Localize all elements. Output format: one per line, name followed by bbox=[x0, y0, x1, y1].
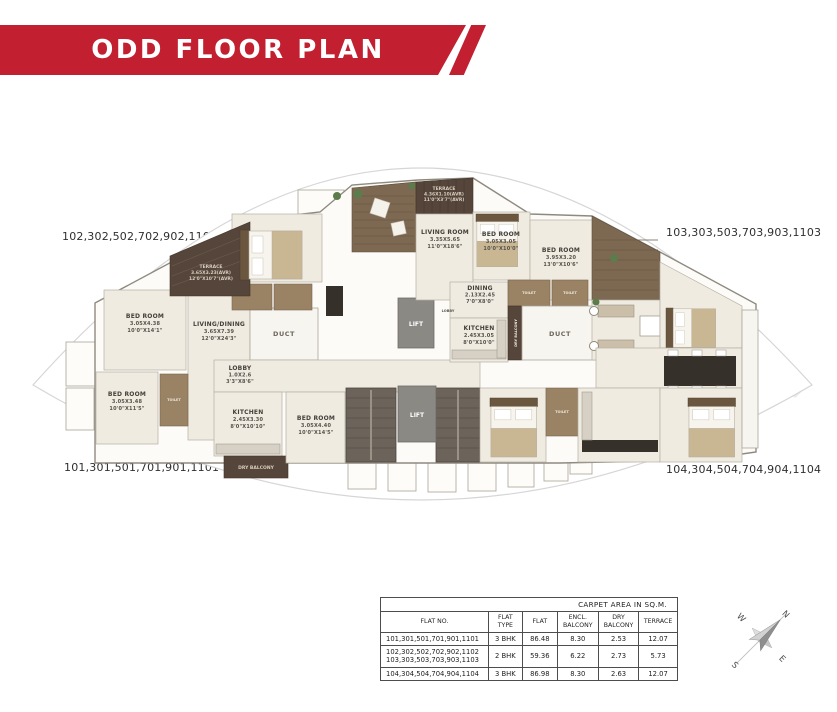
room-label-dining-103: DINING2.13X2.457'0"X8'0" bbox=[465, 285, 496, 305]
bed-104-top bbox=[666, 308, 716, 348]
cell-flat-no: 101,301,501,701,901,1101 bbox=[381, 632, 489, 645]
room-label-duct-right: DUCT bbox=[549, 330, 571, 338]
page-title: ODD FLOOR PLAN bbox=[81, 35, 385, 65]
col-dry-balcony: DRY BALCONY bbox=[598, 612, 638, 633]
table-title: CARPET AREA IN SQ.M. bbox=[381, 598, 678, 612]
room-label-bedroom-102: BED ROOM3.05X4.3810'0"X14'1" bbox=[126, 313, 164, 334]
room-label-toilet-103a: TOILET bbox=[522, 291, 536, 295]
right-edge-balcony bbox=[742, 310, 758, 448]
kitchen-104-counter-2 bbox=[582, 392, 592, 440]
cell-flat-type: 2 BHK bbox=[488, 645, 522, 667]
cell-flat: 86.48 bbox=[522, 632, 557, 645]
table-header-row: FLAT NO. FLAT TYPE FLAT ENCL. BALCONY DR… bbox=[381, 612, 678, 633]
flat-no-line-2: 103,303,503,703,903,1103 bbox=[386, 656, 485, 664]
cell-flat-type: 3 BHK bbox=[488, 667, 522, 680]
table-row-101: 101,301,501,701,901,1101 3 BHK 86.48 8.3… bbox=[381, 632, 678, 645]
odd-floor-plan-page: ODD FLOOR PLAN 102,302,502,702,902,1102 … bbox=[0, 0, 837, 712]
compass-s: S bbox=[729, 660, 740, 671]
cell-terrace: 12.07 bbox=[639, 632, 678, 645]
col-flat-no: FLAT NO. bbox=[381, 612, 489, 633]
flat-no-line-1: 102,302,502,702,902,1102 bbox=[386, 648, 485, 656]
compass-e: E bbox=[776, 654, 787, 665]
bed-104-br bbox=[688, 398, 736, 457]
cell-flat-type: 3 BHK bbox=[488, 632, 522, 645]
room-label-bedroom-103b: BED ROOM3.95X3.2013'0"X10'6" bbox=[542, 247, 580, 268]
cell-flat: 86.98 bbox=[522, 667, 557, 680]
cell-terrace: 12.07 bbox=[639, 667, 678, 680]
room-label-dry-balcony-101: DRY BALCONY bbox=[238, 465, 274, 471]
room-label-lift-upper: LIFT bbox=[409, 321, 424, 328]
sofa-104-a bbox=[598, 305, 634, 317]
cell-dry: 2.73 bbox=[598, 645, 638, 667]
title-banner: ODD FLOOR PLAN bbox=[0, 25, 466, 75]
bed-104-bl bbox=[490, 398, 538, 457]
col-flat: FLAT bbox=[522, 612, 557, 633]
room-label-kitchen-101: KITCHEN2.45X3.308'0"X10'10" bbox=[230, 409, 265, 430]
table-row-104: 104,304,504,704,904,1104 3 BHK 86.98 8.3… bbox=[381, 667, 678, 680]
room-label-duct-left: DUCT bbox=[273, 330, 295, 338]
compass-w: W bbox=[734, 612, 747, 625]
dinette-102-table bbox=[326, 286, 343, 316]
floor-plan-canvas: TERRACE3.65X3.23(AVR)12'0"X10'7"(AVR) BE… bbox=[0, 155, 837, 515]
cell-dry: 2.53 bbox=[598, 632, 638, 645]
table-row-102-103: 102,302,502,702,902,1102 103,303,503,703… bbox=[381, 645, 678, 667]
room-label-toilet-103b: TOILET bbox=[563, 291, 577, 295]
bed-102 bbox=[240, 230, 302, 280]
cell-flat: 59.36 bbox=[522, 645, 557, 667]
cell-flat-no: 102,302,502,702,902,1102 103,303,503,703… bbox=[381, 645, 489, 667]
col-terrace: TERRACE bbox=[639, 612, 678, 633]
room-label-kitchen-103: KITCHEN2.45X3.058'0"X10'0" bbox=[463, 325, 495, 346]
table-title-row: CARPET AREA IN SQ.M. bbox=[381, 598, 678, 612]
room-label-toilet-104: TOILET bbox=[555, 410, 569, 414]
carpet-area-table: CARPET AREA IN SQ.M. FLAT NO. FLAT TYPE … bbox=[380, 597, 678, 681]
room-label-bedroom-101b: BED ROOM3.05X4.4010'0"X14'5" bbox=[297, 415, 335, 436]
centre-table-104 bbox=[640, 316, 660, 336]
room-label-lift-lower: LIFT bbox=[410, 412, 425, 419]
room-label-bedroom-103a: BED ROOM3.05X3.0510'0"X10'0" bbox=[482, 231, 520, 252]
lobby-corridor-floor bbox=[214, 360, 480, 392]
compass-rose: N S W E bbox=[712, 598, 812, 680]
cell-terrace: 5.73 bbox=[639, 645, 678, 667]
col-encl-balcony: ENCL. BALCONY bbox=[557, 612, 598, 633]
kitchen-104-counter bbox=[582, 440, 658, 452]
bath-102-b bbox=[274, 284, 312, 310]
room-label-lobby-core: LOBBY bbox=[442, 309, 455, 313]
room-label-lobby-101: LOBBY1.0X2.63'3"X8'6" bbox=[226, 365, 254, 385]
kitchen-103-counter-2 bbox=[497, 320, 506, 358]
kitchen-101-counter bbox=[216, 444, 280, 454]
dining-104-table bbox=[664, 356, 736, 386]
cell-dry: 2.63 bbox=[598, 667, 638, 680]
cell-flat-no: 104,304,504,704,904,1104 bbox=[381, 667, 489, 680]
cell-encl: 8.30 bbox=[557, 632, 598, 645]
col-flat-type: FLAT TYPE bbox=[488, 612, 522, 633]
room-label-bedroom-101a: BED ROOM3.05X3.4810'0"X11'5" bbox=[108, 391, 146, 412]
cell-encl: 6.22 bbox=[557, 645, 598, 667]
room-label-dry-balcony-103: DRY BALCONY bbox=[514, 319, 518, 347]
cell-encl: 8.30 bbox=[557, 667, 598, 680]
room-label-toilet-101: TOILET bbox=[167, 398, 181, 402]
